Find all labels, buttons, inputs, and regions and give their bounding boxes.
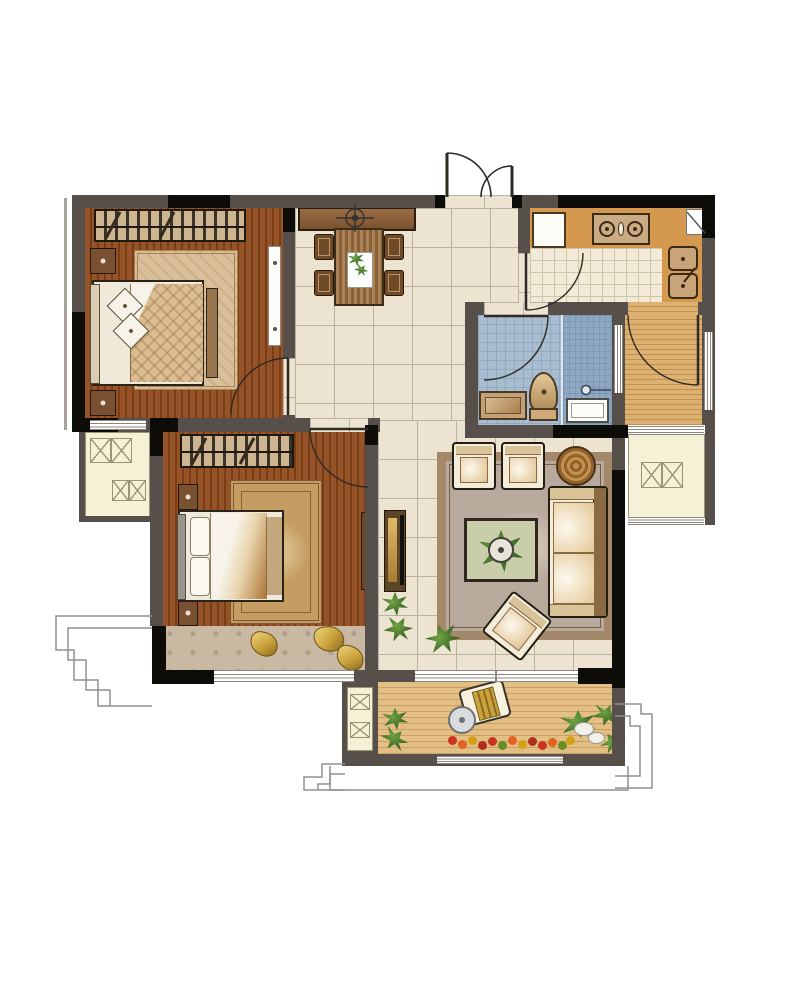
dining-chair xyxy=(314,270,334,296)
x-box xyxy=(350,694,370,710)
coffee-table-center xyxy=(488,537,514,563)
wardrobe-rail xyxy=(96,226,244,228)
bed-pillow xyxy=(190,557,210,596)
vanity xyxy=(479,391,527,420)
shower-tray xyxy=(566,398,609,423)
drain xyxy=(681,257,685,261)
wall-segment xyxy=(79,516,150,522)
sofa-cushion xyxy=(553,553,595,604)
window xyxy=(214,670,354,682)
cabinet-panel xyxy=(388,518,397,582)
wall-segment xyxy=(365,425,378,670)
burner xyxy=(627,221,643,237)
nightstand xyxy=(178,484,198,510)
x-box xyxy=(350,722,370,738)
x-box xyxy=(112,480,129,501)
burner-center xyxy=(605,227,609,231)
second-bed xyxy=(178,510,284,602)
column xyxy=(553,425,628,438)
exterior-line xyxy=(64,198,67,430)
floor-plan xyxy=(0,0,800,1000)
sofa-arm xyxy=(550,604,594,616)
entry-double-door xyxy=(447,153,512,197)
dining-chair xyxy=(314,234,334,260)
headboard xyxy=(177,514,186,600)
bed-pillow xyxy=(190,517,210,556)
wall-segment xyxy=(79,432,85,522)
second-wardrobe xyxy=(180,434,294,468)
x-box xyxy=(129,480,146,501)
rocks xyxy=(588,732,605,744)
window xyxy=(628,517,704,525)
threshold xyxy=(484,302,548,315)
door-jamb xyxy=(435,195,445,208)
lounge-cushion xyxy=(472,686,501,721)
ac-unit-box xyxy=(90,438,132,463)
column xyxy=(365,425,378,445)
armchair xyxy=(501,442,545,490)
x-box xyxy=(111,438,132,463)
nightstand xyxy=(178,600,198,626)
flush-button xyxy=(541,390,546,395)
ac-unit-box xyxy=(112,480,146,501)
wall-segment xyxy=(705,425,715,525)
column xyxy=(283,208,295,232)
kitchen-floor xyxy=(530,248,662,302)
wall-segment xyxy=(378,670,415,682)
threshold xyxy=(518,253,530,303)
wall-segment xyxy=(150,432,163,626)
window xyxy=(628,426,704,435)
window xyxy=(90,420,146,430)
cooktop xyxy=(592,213,650,245)
drain xyxy=(681,284,685,288)
window xyxy=(437,756,563,764)
threshold xyxy=(310,418,368,432)
column xyxy=(72,312,85,418)
column xyxy=(152,670,214,684)
nightstand xyxy=(90,248,116,274)
toilet-tank xyxy=(529,408,558,421)
radiator-dot xyxy=(273,327,277,331)
center-dot xyxy=(459,717,465,723)
knob xyxy=(101,401,106,406)
threshold xyxy=(628,302,698,315)
wall-segment xyxy=(612,688,625,766)
window xyxy=(614,325,623,393)
column xyxy=(168,195,230,208)
wall-segment xyxy=(518,208,530,253)
center-dot xyxy=(498,547,504,553)
threshold xyxy=(445,195,512,208)
wall-segment xyxy=(72,195,445,208)
wall-segment xyxy=(283,232,295,358)
window xyxy=(704,332,713,410)
tray-inner xyxy=(571,403,604,418)
flower-bed xyxy=(448,736,457,745)
sofa-arm xyxy=(550,488,594,500)
shaft-box xyxy=(350,694,370,710)
sofa xyxy=(548,486,608,618)
shower-screen xyxy=(561,315,563,425)
cooktop-oval xyxy=(618,222,624,236)
radiator xyxy=(268,246,281,346)
slider-divider xyxy=(495,670,497,682)
column xyxy=(150,430,163,456)
armchair xyxy=(452,442,496,490)
master-wardrobe xyxy=(94,209,246,242)
duvet xyxy=(210,513,267,599)
vanity-basin xyxy=(485,397,521,414)
wall-segment xyxy=(702,238,715,315)
sofa-cushion xyxy=(553,502,595,553)
dining-chair xyxy=(384,270,404,296)
foot-bench xyxy=(206,288,218,378)
kitchen-sink xyxy=(668,246,700,300)
burner xyxy=(599,221,615,237)
sink-basin xyxy=(668,246,698,271)
wall-segment xyxy=(612,302,628,315)
round-side-table xyxy=(556,446,596,486)
column xyxy=(558,195,715,208)
nightstand xyxy=(90,390,116,416)
wall-segment xyxy=(548,302,612,315)
dining-chair xyxy=(384,234,404,260)
ac-unit-box xyxy=(641,462,683,488)
laundry-hall-floor xyxy=(625,315,702,425)
x-box xyxy=(662,462,683,488)
balcony-slider-window xyxy=(415,670,578,682)
threshold xyxy=(283,358,295,415)
blanket-fold xyxy=(266,517,282,595)
burner-center xyxy=(633,227,637,231)
tv-cabinet xyxy=(384,510,406,592)
wardrobe-rail xyxy=(182,451,292,453)
toilet xyxy=(529,372,558,412)
tv-screen xyxy=(400,515,404,585)
column xyxy=(702,208,715,238)
knob xyxy=(186,611,191,616)
radiator-dot xyxy=(273,261,277,265)
door-jamb xyxy=(512,195,522,208)
coffee-table xyxy=(464,518,538,582)
patio-table xyxy=(448,706,476,734)
wall-segment xyxy=(465,302,478,438)
knob xyxy=(186,495,191,500)
shaft-box xyxy=(350,722,370,738)
knob xyxy=(101,259,106,264)
headboard xyxy=(90,284,100,384)
x-box xyxy=(641,462,662,488)
refrigerator xyxy=(532,212,566,248)
column xyxy=(612,470,625,688)
x-box xyxy=(90,438,111,463)
sink-basin xyxy=(668,273,698,299)
master-bed xyxy=(92,280,204,386)
